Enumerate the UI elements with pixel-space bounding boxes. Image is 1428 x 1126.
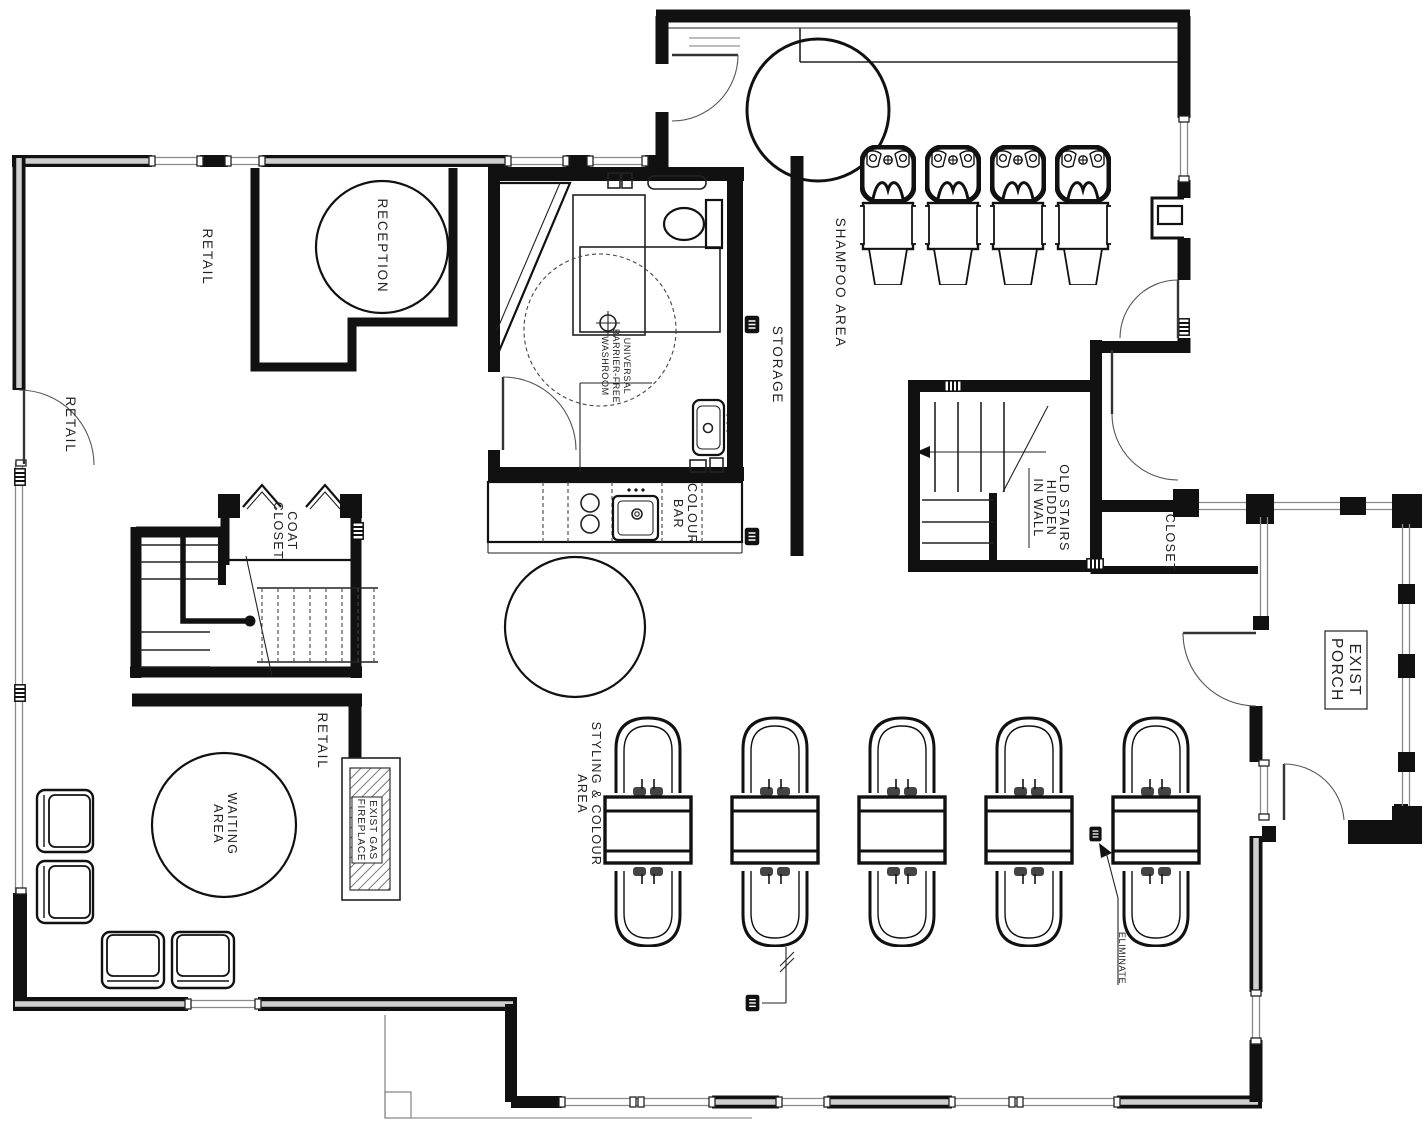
wall-notch — [1262, 826, 1276, 842]
shampoo-station — [923, 147, 983, 285]
label-washroom-l2: BARRIER-FREE — [611, 329, 621, 403]
porch-inner-door — [1183, 633, 1256, 706]
label-eliminate: ELIMINATE — [1117, 932, 1127, 984]
deck-outline — [385, 1015, 752, 1118]
label-old-stairs: OLD STAIRS HIDDEN IN WALL — [1029, 464, 1071, 551]
deck-step — [385, 1092, 411, 1118]
basement-stairs — [140, 529, 378, 676]
armchair — [37, 861, 93, 923]
label-reception: RECEPTION — [375, 199, 390, 294]
styling-station — [605, 718, 691, 946]
waiting-area — [37, 753, 296, 988]
label-exist-porch-l1: EXIST — [1346, 644, 1363, 697]
label-colour-bar: COLOUR BAR — [671, 483, 699, 545]
old-stairs-room — [916, 402, 1048, 543]
entry-door-top — [672, 38, 740, 121]
label-colour-bar-l2: BAR — [671, 499, 685, 529]
armchair — [172, 932, 234, 988]
turning-circle-colour — [505, 557, 645, 697]
washroom-fixtures — [497, 173, 730, 472]
floor-plan: RETAIL RETAIL RETAIL RECEPTION UNIVERSAL… — [0, 0, 1428, 1126]
colour-bar-sink — [613, 488, 658, 540]
label-storage: STORAGE — [770, 326, 785, 404]
reception-desk — [255, 168, 453, 367]
label-waiting-area-l2: AREA — [211, 804, 225, 844]
reception-area — [255, 168, 453, 367]
label-exist-porch-l2: PORCH — [1328, 638, 1345, 702]
coat-closet-bifold-doors — [243, 485, 344, 509]
fold-seat — [497, 183, 570, 356]
styling-station — [986, 718, 1072, 946]
washroom-sink — [693, 400, 730, 455]
label-fireplace-l1: EXIST GAS — [367, 800, 378, 860]
label-washroom-l3: WASHROOM — [600, 336, 610, 395]
label-waiting-area-l1: WAITING — [225, 793, 239, 856]
styling-stations — [605, 718, 1199, 946]
outlet-box-bottom — [746, 995, 760, 1012]
label-styling-area: STYLING & COLOUR AREA — [575, 722, 603, 867]
leader-arrowhead — [1099, 843, 1112, 858]
outlet-box — [745, 316, 760, 334]
label-coat-closet-l2: CLOSET — [271, 502, 285, 560]
label-washroom-l1: UNIVERSAL — [622, 338, 632, 394]
label-shampoo-area: SHAMPOO AREA — [833, 218, 848, 348]
niche-shelf — [1158, 206, 1182, 224]
shampoo-station — [858, 147, 918, 285]
label-fireplace-l2: FIREPLACE — [355, 799, 366, 862]
label-washroom: UNIVERSAL BARRIER-FREE WASHROOM — [600, 329, 632, 403]
label-colour-bar-l1: COLOUR — [685, 483, 699, 545]
colour-bar — [488, 482, 742, 697]
label-retail-top: RETAIL — [200, 228, 215, 285]
porch-post — [1398, 584, 1415, 604]
label-retail-mid: RETAIL — [315, 712, 330, 769]
wall-niche — [1152, 198, 1184, 238]
label-fireplace: EXIST GAS FIREPLACE — [352, 797, 382, 863]
washroom-door — [503, 377, 576, 450]
label-styling-area-l1: STYLING & COLOUR — [589, 722, 603, 867]
shampoo-station — [1053, 147, 1113, 285]
entry-door-left — [19, 390, 94, 465]
label-old-stairs-l2: HIDDEN — [1044, 480, 1058, 536]
porch-entry-door — [1284, 764, 1344, 820]
label-exist-porch: EXIST PORCH — [1325, 631, 1367, 709]
porch-post — [1398, 654, 1415, 678]
label-closet: CLOSET — [1163, 514, 1177, 572]
shampoo-counter — [800, 28, 1178, 62]
label-coat-closet-l1: COAT — [285, 511, 299, 550]
shampoo-room — [747, 28, 1184, 285]
vestibule-door — [1112, 350, 1178, 480]
porch-post — [1398, 752, 1415, 772]
label-coat-closet: COAT CLOSET — [271, 502, 299, 560]
label-styling-area-l2: AREA — [575, 774, 589, 814]
label-waiting-area: WAITING AREA — [211, 793, 239, 856]
shampoo-back-door — [1120, 280, 1178, 338]
armchair — [37, 790, 93, 852]
styling-station — [859, 718, 945, 946]
toilet — [664, 200, 722, 248]
styling-station — [732, 718, 818, 946]
label-retail-left: RETAIL — [63, 396, 78, 453]
shampoo-station — [988, 147, 1048, 285]
label-old-stairs-l3: IN WALL — [1031, 478, 1045, 537]
armchair — [102, 932, 164, 988]
label-old-stairs-l1: OLD STAIRS — [1057, 464, 1071, 551]
outlet-box — [745, 528, 760, 546]
styling-station — [1113, 718, 1199, 946]
outlet-box-eliminate — [1089, 827, 1101, 842]
